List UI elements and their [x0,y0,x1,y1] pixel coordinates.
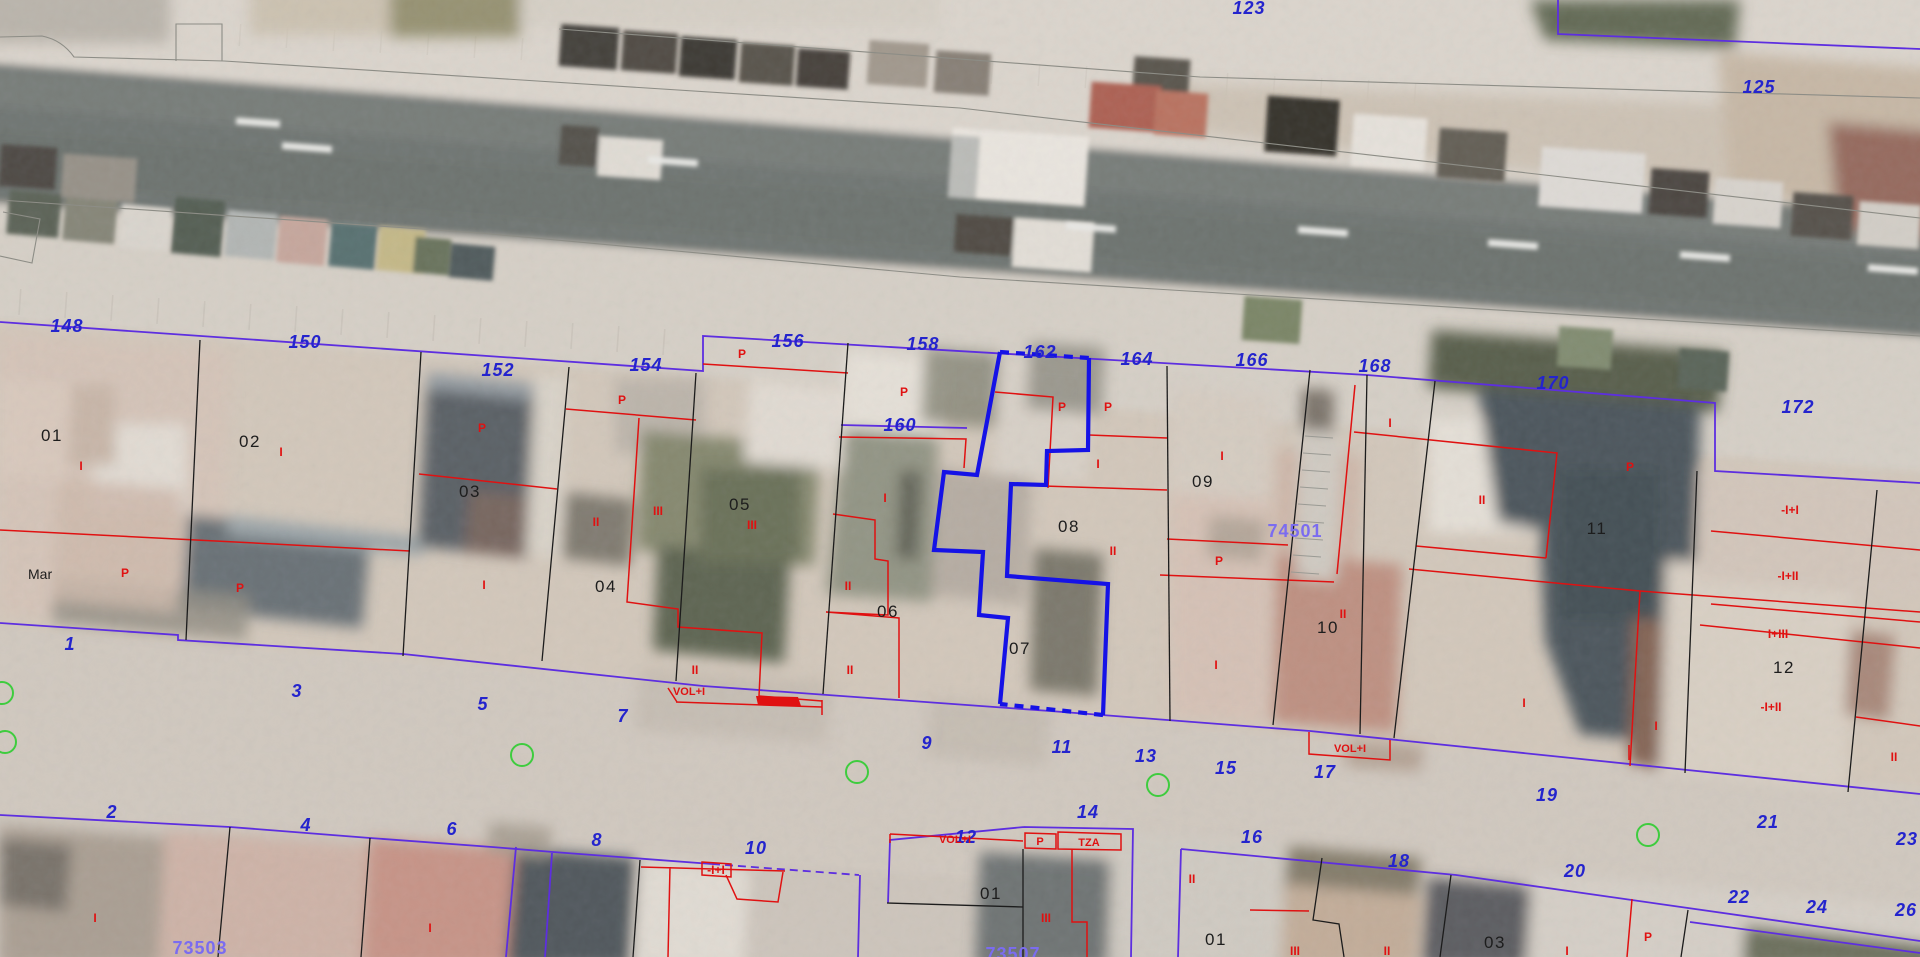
svg-text:7: 7 [617,706,628,726]
svg-text:26: 26 [1894,900,1917,920]
svg-text:P: P [121,566,129,580]
svg-text:170: 170 [1536,373,1569,393]
svg-text:172: 172 [1781,397,1814,417]
svg-text:2: 2 [105,802,117,822]
svg-text:05: 05 [729,495,751,514]
svg-text:21: 21 [1756,812,1779,832]
svg-text:73507: 73507 [985,944,1040,957]
svg-text:10: 10 [1317,618,1339,637]
svg-text:I: I [1522,696,1525,710]
svg-text:03: 03 [1484,933,1506,952]
svg-text:II: II [1384,944,1391,957]
svg-text:10: 10 [745,838,767,858]
svg-text:152: 152 [481,360,514,380]
svg-text:1: 1 [64,634,75,654]
svg-text:168: 168 [1358,356,1391,376]
svg-text:II: II [1479,493,1486,507]
svg-text:I: I [279,445,282,459]
svg-text:P: P [1058,400,1066,414]
svg-text:150: 150 [288,332,321,352]
svg-text:01: 01 [980,884,1002,903]
svg-text:04: 04 [595,577,617,596]
svg-text:11: 11 [1587,519,1608,538]
svg-text:II: II [845,579,852,593]
svg-text:08: 08 [1058,517,1080,536]
svg-text:P: P [236,581,244,595]
svg-text:I: I [1565,944,1568,957]
svg-text:154: 154 [629,355,662,375]
svg-text:II: II [1340,607,1347,621]
svg-text:166: 166 [1235,350,1268,370]
svg-text:P: P [618,393,626,407]
svg-text:I: I [1654,719,1657,733]
svg-text:II: II [1891,750,1898,764]
svg-text:P: P [1215,554,1223,568]
svg-text:I: I [93,911,96,925]
svg-text:4: 4 [299,815,311,835]
svg-text:24: 24 [1805,897,1828,917]
svg-text:P: P [900,385,908,399]
svg-text:III: III [1290,944,1300,957]
svg-text:Mar: Mar [28,566,52,582]
svg-text:09: 09 [1192,472,1214,491]
svg-text:11: 11 [1052,737,1073,757]
svg-text:-I+I: -I+I [707,863,725,877]
svg-text:73503: 73503 [172,938,227,957]
svg-text:14: 14 [1077,802,1099,822]
svg-text:P: P [478,421,486,435]
svg-text:162: 162 [1023,342,1056,362]
svg-text:II: II [1110,544,1117,558]
svg-text:VOL+I: VOL+I [1334,743,1366,755]
svg-text:148: 148 [50,316,83,336]
svg-text:20: 20 [1563,861,1586,881]
svg-text:06: 06 [877,602,899,621]
svg-text:III: III [1041,911,1051,925]
svg-text:9: 9 [921,733,932,753]
svg-text:74501: 74501 [1267,521,1322,541]
svg-text:-I+I: -I+I [1781,503,1799,517]
svg-text:VOL+I: VOL+I [673,686,705,698]
svg-text:8: 8 [591,830,602,850]
svg-text:13: 13 [1135,746,1157,766]
svg-text:123: 123 [1232,0,1265,18]
svg-text:I+III: I+III [1768,627,1788,641]
svg-text:P: P [1104,400,1112,414]
svg-text:I: I [428,921,431,935]
svg-text:01: 01 [1205,930,1227,949]
svg-text:TZA: TZA [1078,837,1099,849]
svg-text:I: I [1214,658,1217,672]
svg-text:3: 3 [291,681,302,701]
svg-text:P: P [1626,460,1634,474]
svg-text:160: 160 [883,415,916,435]
svg-text:-I+II: -I+II [1777,569,1798,583]
svg-text:158: 158 [906,334,939,354]
svg-text:I: I [1220,449,1223,463]
svg-text:01: 01 [41,426,63,445]
svg-text:P: P [1036,836,1043,848]
svg-text:I: I [79,459,82,473]
svg-text:III: III [653,504,663,518]
svg-text:02: 02 [239,432,261,451]
svg-text:19: 19 [1536,785,1558,805]
svg-text:18: 18 [1388,851,1410,871]
svg-text:16: 16 [1241,827,1263,847]
svg-text:I: I [482,578,485,592]
svg-text:07: 07 [1009,639,1031,658]
svg-text:5: 5 [477,694,488,714]
svg-text:II: II [1189,872,1196,886]
svg-text:03: 03 [459,482,481,501]
svg-text:I: I [883,491,886,505]
svg-text:156: 156 [771,331,804,351]
svg-text:23: 23 [1895,829,1918,849]
svg-text:6: 6 [446,819,457,839]
svg-text:P: P [1644,930,1652,944]
svg-text:17: 17 [1314,762,1336,782]
svg-text:II: II [692,663,699,677]
svg-text:-I+II: -I+II [1760,700,1781,714]
svg-text:I: I [1388,416,1391,430]
svg-text:I: I [1096,457,1099,471]
svg-text:P: P [738,347,746,361]
svg-text:125: 125 [1742,77,1775,97]
svg-text:III: III [747,518,757,532]
svg-text:164: 164 [1120,349,1153,369]
svg-text:II: II [847,663,854,677]
svg-text:22: 22 [1727,887,1750,907]
svg-text:VOL+I: VOL+I [939,834,971,846]
svg-text:12: 12 [1773,658,1795,677]
svg-text:II: II [593,515,600,529]
svg-text:15: 15 [1215,758,1237,778]
